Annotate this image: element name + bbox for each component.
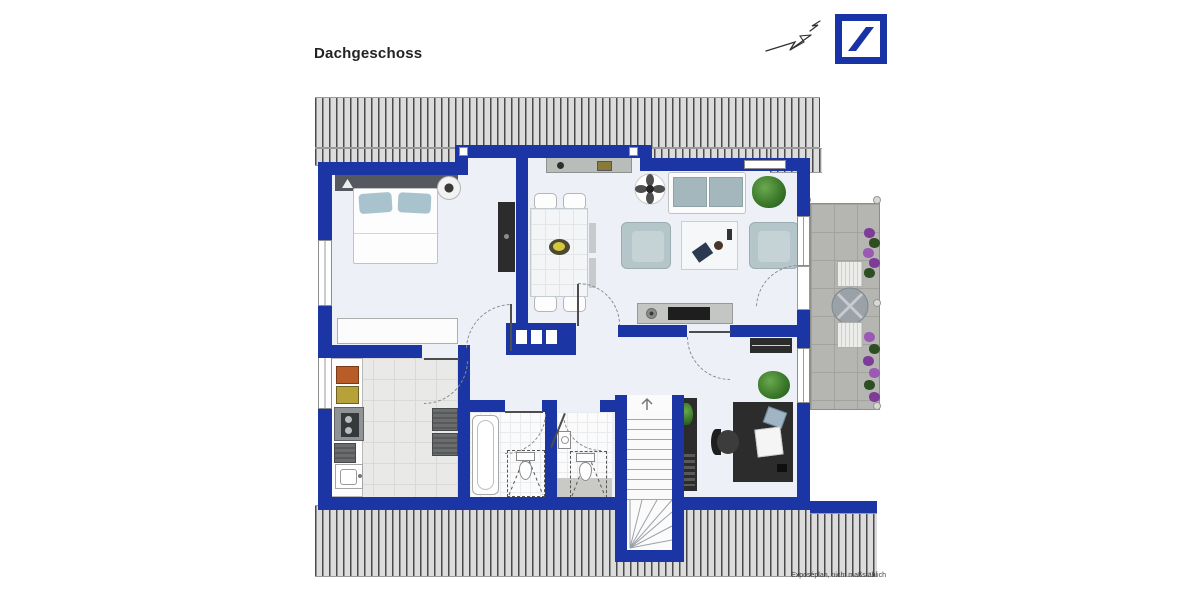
flower-box	[869, 344, 880, 354]
office-desk	[733, 402, 793, 482]
roof-hatch-top	[315, 97, 820, 148]
dining-bench	[589, 258, 596, 288]
sofa	[668, 172, 746, 214]
burner	[345, 427, 352, 434]
bathtub	[472, 415, 499, 495]
speaker	[646, 308, 657, 319]
wall-bath-top	[542, 400, 557, 412]
kitchen-sink	[335, 464, 363, 489]
bedroom-dresser	[498, 202, 515, 272]
toilet-tank	[576, 453, 595, 462]
door-leaf	[510, 304, 512, 351]
window-office	[797, 348, 810, 403]
exterior-wall-right	[797, 310, 810, 348]
stairs-up-arrow-icon	[637, 396, 657, 411]
chimney-flue	[546, 330, 557, 344]
flower-box	[864, 380, 875, 390]
wall-bath-top	[470, 400, 505, 412]
decor-item	[597, 161, 612, 171]
appliance	[432, 408, 458, 431]
fruit	[553, 242, 565, 251]
wall-living-hall	[730, 325, 797, 337]
laptop	[692, 242, 713, 262]
sofa-cushion	[709, 177, 743, 207]
balcony-post	[873, 402, 881, 410]
bed-pillow	[358, 192, 392, 214]
stair-winder	[627, 498, 672, 550]
toilet-bowl	[519, 461, 532, 480]
wall-stair-bottom	[615, 550, 684, 562]
door-leaf	[424, 358, 459, 360]
tv	[668, 307, 710, 320]
wall	[810, 501, 877, 513]
armchair	[621, 222, 671, 269]
balcony-post	[873, 299, 881, 307]
roof-hatch-bottom-right	[810, 513, 877, 577]
floorplan-page: Dachgeschoss	[0, 0, 1200, 600]
roof-window	[629, 147, 638, 156]
bed-seam	[354, 233, 439, 234]
desk-laptop	[763, 406, 788, 429]
exterior-wall-right	[797, 403, 810, 510]
deutsche-bank-logo	[835, 14, 887, 64]
wardrobe-slit	[752, 345, 790, 346]
coffee-table	[681, 221, 738, 270]
flower-box	[869, 368, 880, 378]
tub-basin	[477, 420, 494, 490]
bed-pillow	[397, 192, 431, 214]
faucet	[358, 474, 362, 478]
sink-basin	[340, 469, 357, 485]
flower-box	[869, 258, 880, 268]
flower-box	[863, 356, 874, 366]
north-arrow-icon	[763, 20, 823, 58]
desk-chair	[711, 425, 739, 459]
kitchen-cabinet	[334, 443, 356, 463]
chair-seat	[717, 430, 739, 454]
toilet	[516, 452, 536, 482]
flower-box	[863, 248, 874, 258]
tv-lowboard	[637, 303, 733, 324]
sideboard	[546, 157, 632, 173]
exterior-wall-left	[318, 162, 332, 510]
chimney	[506, 323, 576, 355]
papers	[754, 427, 783, 458]
toilet	[576, 453, 596, 483]
toilet-tank	[516, 452, 535, 461]
chimney-flue	[516, 330, 527, 344]
plant	[752, 176, 786, 208]
flower-box	[864, 332, 875, 342]
armchair-cushion	[758, 231, 790, 262]
plant	[758, 371, 790, 399]
balcony-post	[873, 196, 881, 204]
fruit-bowl	[549, 239, 570, 255]
decor-item	[557, 162, 564, 169]
wall-bedroom-top	[318, 162, 468, 175]
armchair	[749, 222, 799, 269]
wall-kitchen-top	[318, 345, 422, 358]
office-wardrobe	[750, 338, 792, 353]
chimney-flue	[531, 330, 542, 344]
flower-box	[869, 392, 880, 402]
roof-hatch-bottom	[315, 505, 810, 577]
flower-box	[864, 228, 875, 238]
ceiling-fan	[634, 173, 666, 205]
cup	[714, 241, 723, 250]
stair-steps	[627, 410, 672, 502]
stove	[334, 407, 364, 441]
table-fan	[437, 176, 461, 200]
burner	[345, 416, 352, 423]
wall-stair-right	[672, 395, 684, 562]
basin-bowl	[561, 436, 569, 444]
bedroom-wardrobe	[337, 318, 458, 344]
dresser-knob	[504, 234, 509, 239]
armchair-cushion	[632, 231, 664, 262]
flower-box	[869, 238, 880, 248]
exterior-wall-right	[797, 158, 810, 216]
page-title: Dachgeschoss	[314, 45, 422, 62]
balcony-chair	[837, 261, 863, 287]
wall-bedroom-dining	[516, 158, 528, 325]
dining-bench	[589, 223, 596, 253]
decor-item	[342, 179, 353, 188]
sofa-cushion	[673, 177, 707, 207]
desk-item	[777, 464, 787, 472]
food-tray	[336, 366, 359, 384]
balcony-table	[831, 287, 869, 325]
wall-dining-top	[455, 145, 652, 158]
wall-living-hall	[618, 325, 687, 337]
roof-window	[744, 160, 786, 169]
wall-bath-top	[600, 400, 615, 412]
door-leaf	[689, 331, 731, 333]
door-leaf	[577, 284, 579, 326]
door-leaf	[505, 411, 543, 413]
wall-stair-left	[615, 395, 627, 562]
exterior-wall-bottom	[318, 497, 810, 510]
roof-window	[459, 147, 468, 156]
dining-chair	[534, 295, 557, 312]
window-bedroom	[318, 240, 332, 306]
window-kitchen	[318, 352, 332, 409]
window-living	[797, 216, 810, 266]
food-tray	[336, 386, 359, 404]
wall-bath-divider	[545, 412, 557, 497]
flower-box	[864, 268, 875, 278]
scale-disclaimer: Exposéplan, nicht maßstäblich	[640, 572, 886, 579]
double-bed	[353, 188, 438, 264]
toilet-bowl	[579, 462, 592, 481]
remote	[727, 229, 732, 240]
appliance	[432, 433, 458, 456]
balcony-chair	[837, 322, 863, 348]
